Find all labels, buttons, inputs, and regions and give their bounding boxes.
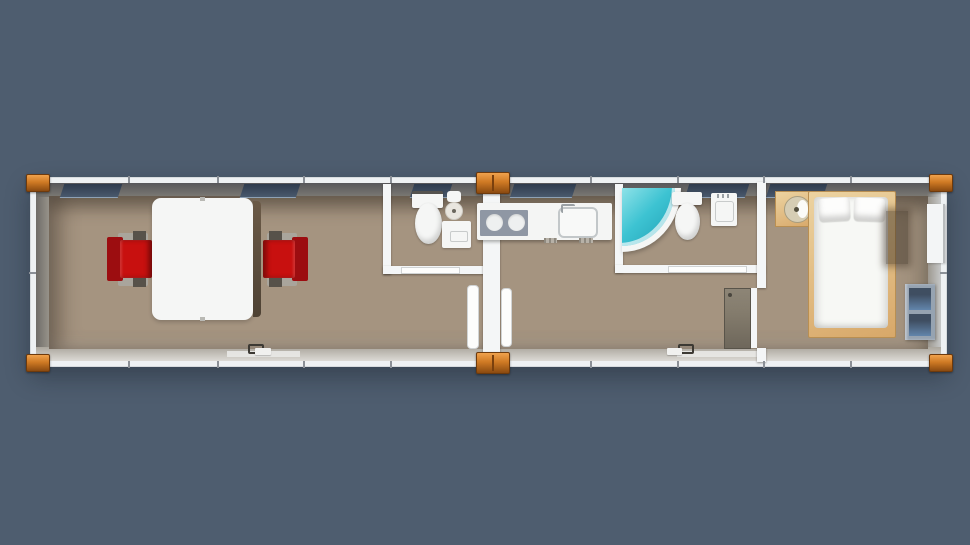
basin-drain (794, 207, 799, 212)
corner-casting (26, 174, 50, 192)
panel-joint-tick (303, 361, 305, 368)
panel-joint-tick (390, 361, 392, 368)
render-background (0, 0, 970, 545)
entry-door-latch (667, 348, 682, 355)
corner-casting (929, 354, 953, 372)
cabinet-shelf (909, 288, 931, 310)
chair-accent (133, 278, 146, 287)
panel-joint-tick (850, 176, 852, 183)
chair-accent (133, 231, 146, 240)
chair-accent (269, 278, 282, 287)
table-joint-bottom (200, 317, 205, 321)
panel-joint-tick (763, 361, 765, 368)
chair-seat (120, 240, 152, 278)
burner (508, 214, 525, 231)
panel-joint-tick (303, 176, 305, 183)
door-handle-dot (728, 293, 732, 297)
panel-joint-tick (29, 272, 36, 274)
window-pane (240, 184, 301, 198)
corridor-open-door-right (501, 288, 512, 347)
panel-joint-tick (217, 361, 219, 368)
window-pane (60, 184, 123, 198)
corner-casting (929, 174, 953, 192)
washstand-basin (784, 196, 811, 223)
bedside-shadow (886, 211, 908, 264)
floor-plan (30, 177, 947, 367)
sink-faucet-marks (717, 194, 730, 198)
panel-joint-tick (590, 361, 592, 368)
counter-base-grille (544, 238, 557, 243)
wall-sink (711, 193, 737, 226)
casting-slot (492, 175, 494, 191)
pillow (818, 197, 850, 222)
chair-seat (263, 240, 295, 278)
junction-casting (476, 172, 510, 194)
panel-joint-tick (677, 361, 679, 368)
casting-slot (492, 355, 494, 371)
bathroom-accessory (447, 191, 461, 202)
bedroom-open-door-leaf (724, 288, 751, 349)
corner-casting (26, 354, 50, 372)
panel-joint-tick (390, 176, 392, 183)
table-side-shadow (253, 201, 261, 317)
sink-inset (715, 201, 734, 222)
bedroom-partition-wall-lower (757, 348, 766, 362)
faucet (561, 204, 575, 213)
panel-joint-tick (850, 361, 852, 368)
tray-inset (450, 231, 468, 242)
kitchen-counter (477, 203, 612, 240)
window-pane (510, 184, 577, 198)
pillow (854, 197, 886, 221)
corridor-open-door-left (467, 285, 479, 349)
shower-tray (442, 221, 471, 248)
meeting-table (152, 198, 253, 320)
panel-joint-tick (677, 176, 679, 183)
two-burner-stove (480, 210, 528, 236)
blue-storage-cabinet (905, 284, 935, 340)
double-bed-frame (808, 191, 896, 338)
red-chair-left (107, 231, 152, 287)
chair-accent (269, 231, 282, 240)
counter-base-grille (579, 238, 593, 243)
panel-joint-tick (128, 361, 130, 368)
panel-joint-tick (940, 272, 947, 274)
table-joint-top (200, 197, 205, 201)
red-chair-right (263, 231, 308, 287)
round-wall-basin (445, 202, 463, 220)
bathroom2-door (668, 266, 747, 273)
panel-joint-tick (128, 176, 130, 183)
panel-joint-tick (763, 176, 765, 183)
bedroom-partition-wall-upper (757, 182, 766, 288)
panel-joint-tick (590, 176, 592, 183)
bathroom1-door (401, 267, 460, 274)
junction-casting (476, 352, 510, 374)
cabinet-shelf (909, 314, 931, 336)
entry-door-latch (255, 348, 271, 355)
wall-face-left (36, 183, 50, 361)
right-wall-shelf (927, 204, 945, 263)
toilet-bowl (415, 203, 442, 244)
bathroom1-left-wall (383, 184, 391, 274)
panel-joint-tick (217, 176, 219, 183)
basin-drain (452, 209, 456, 213)
toilet-bowl (675, 203, 700, 240)
burner (486, 214, 503, 231)
